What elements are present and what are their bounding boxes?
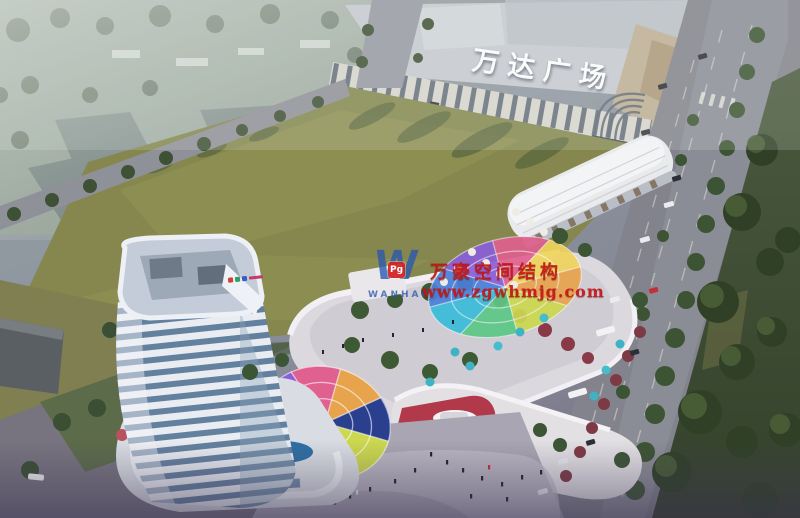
watermark-website-url: www.zgwhmjg.com — [422, 282, 605, 301]
tower-logo-mark-blue — [242, 276, 247, 281]
tower-logo-mark-green — [235, 277, 240, 282]
watermark: W Pg WANHAO 万豪空间结构 www.zgwhmjg.com — [368, 250, 583, 312]
tower-logo-mark-red — [228, 277, 233, 282]
watermark-logo-badge: Pg — [388, 262, 405, 278]
tower-logo-text-stroke — [249, 275, 263, 279]
rendering-canvas: 万达广场 W Pg WANHAO 万豪空间结构 www.zgwhmjg.com — [0, 0, 800, 518]
watermark-company-name: 万豪空间结构 — [430, 258, 562, 284]
